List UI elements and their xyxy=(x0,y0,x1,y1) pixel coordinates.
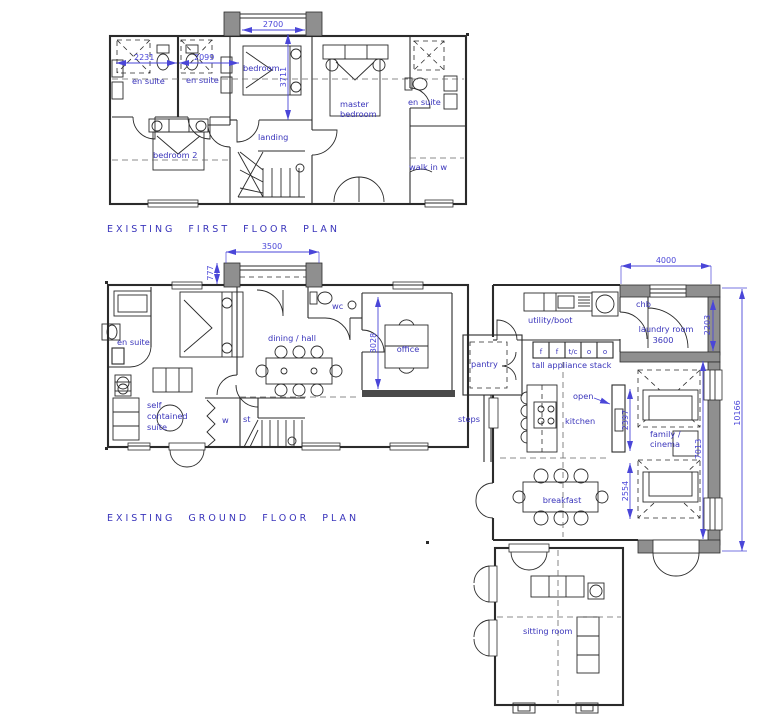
setting-out-dot xyxy=(105,447,108,450)
ff-ensuite-fixtures xyxy=(112,40,232,99)
lamp-table-icon xyxy=(590,585,602,597)
dim-4000: 4000 xyxy=(656,256,676,265)
first-floor-plan: 2700 3711 2231 2099 en suite en suite be… xyxy=(107,12,466,235)
dim-3028: 3028 xyxy=(369,333,378,353)
dim-3500: 3500 xyxy=(262,242,282,251)
label-laundry-1: laundry room xyxy=(639,324,694,334)
dim-2203: 2203 xyxy=(703,315,712,335)
sofa-icon xyxy=(643,390,698,420)
ground-floor-title: EXISTING GROUND FLOOR PLAN xyxy=(107,513,359,524)
dim-2554: 2554 xyxy=(621,481,630,501)
label-en-suite-2: en suite xyxy=(186,75,219,85)
label-steps: steps xyxy=(458,414,480,424)
dim-ensuite2: 2099 xyxy=(194,53,214,62)
dim-ensuite1: 2231 xyxy=(134,53,154,62)
label-master-1: master xyxy=(340,99,370,109)
label-family-1: family / xyxy=(650,429,681,439)
label-open: open xyxy=(573,391,593,401)
toilet-icon xyxy=(318,292,332,304)
setting-out-dot xyxy=(105,281,108,284)
gf-appliance-stack: f f t/c o o xyxy=(533,342,613,358)
label-kitchen: kitchen xyxy=(565,416,595,426)
dim-2397: 2397 xyxy=(621,410,630,430)
gf-dining-table-icon xyxy=(256,346,342,396)
basin-icon xyxy=(444,76,457,91)
label-family-2: cinema xyxy=(650,439,680,449)
label-suite-2: contained xyxy=(147,411,188,421)
ff-stairs xyxy=(238,151,305,197)
label-suite-3: suite xyxy=(147,422,167,432)
stack-cell-3: o xyxy=(587,348,591,356)
floor-plan-sheet: 2700 3711 2231 2099 en suite en suite be… xyxy=(0,0,784,722)
label-w-cupboard: w xyxy=(222,415,229,425)
dim-10166: 10166 xyxy=(733,400,742,425)
dim-777: 777 xyxy=(206,265,215,280)
label-walk-in: walk in w xyxy=(409,162,447,172)
label-chb: chb xyxy=(636,299,651,309)
sofa-icon xyxy=(577,617,599,673)
ff-partitions xyxy=(112,36,466,204)
basin-icon xyxy=(348,301,356,309)
label-bedroom2: bedroom 2 xyxy=(153,150,197,160)
dim-bedroom-depth: 3711 xyxy=(279,67,288,87)
sofa-icon xyxy=(643,472,698,502)
basin-icon xyxy=(112,82,123,99)
dim-7013: 7013 xyxy=(694,439,703,459)
label-en-suite-right: en suite xyxy=(408,97,441,107)
ff-bedroom2-bed-icon xyxy=(149,119,208,170)
label-utility: utility/boot xyxy=(528,315,573,325)
label-breakfast: breakfast xyxy=(543,495,582,505)
stack-cell-1: f xyxy=(556,348,559,356)
dormer-post xyxy=(224,12,240,36)
label-store: st xyxy=(243,414,251,424)
setting-out-dot xyxy=(466,33,469,36)
sink-icon xyxy=(558,296,574,308)
dormer-post xyxy=(306,12,322,36)
basin-icon xyxy=(444,94,457,109)
label-laundry-2: 3600 xyxy=(653,335,674,345)
open-arrow xyxy=(594,398,610,404)
label-landing: landing xyxy=(258,132,288,142)
stack-cell-0: f xyxy=(540,348,543,356)
gf-dormer xyxy=(224,263,322,287)
label-en-suite-1: en suite xyxy=(132,76,165,86)
stack-cell-2: t/c xyxy=(569,348,578,356)
first-floor-title: EXISTING FIRST FLOOR PLAN xyxy=(107,224,340,235)
label-bedroom: bedroom xyxy=(243,63,280,73)
label-pantry: pantry xyxy=(471,359,498,369)
label-stack: tall appliance stack xyxy=(532,360,612,370)
label-office: office xyxy=(397,344,419,354)
label-master-2: bedroom xyxy=(340,109,377,119)
label-dining-hall: dining / hall xyxy=(268,333,316,343)
ground-floor-plan: f f t/c o o xyxy=(102,33,747,713)
label-suite-1: self xyxy=(147,400,163,410)
gf-doors-left xyxy=(130,290,384,407)
label-gf-en-suite: en suite xyxy=(117,337,150,347)
toilet-icon xyxy=(186,45,198,53)
office-dark-wall xyxy=(362,390,455,397)
setting-out-dot xyxy=(426,541,429,544)
label-sitting-room: sitting room xyxy=(523,626,572,636)
gf-kitchen-island-icon xyxy=(521,385,557,452)
gf-utility-fittings xyxy=(524,292,618,316)
floor-plan-drawing: 2700 3711 2231 2099 en suite en suite be… xyxy=(0,0,784,722)
dim-dormer-width: 2700 xyxy=(263,20,283,29)
sideboard-icon xyxy=(531,576,584,597)
toilet-icon xyxy=(157,45,169,53)
label-wc: wc xyxy=(332,301,343,311)
boiler-icon xyxy=(596,295,614,313)
stack-cell-4: o xyxy=(603,348,607,356)
